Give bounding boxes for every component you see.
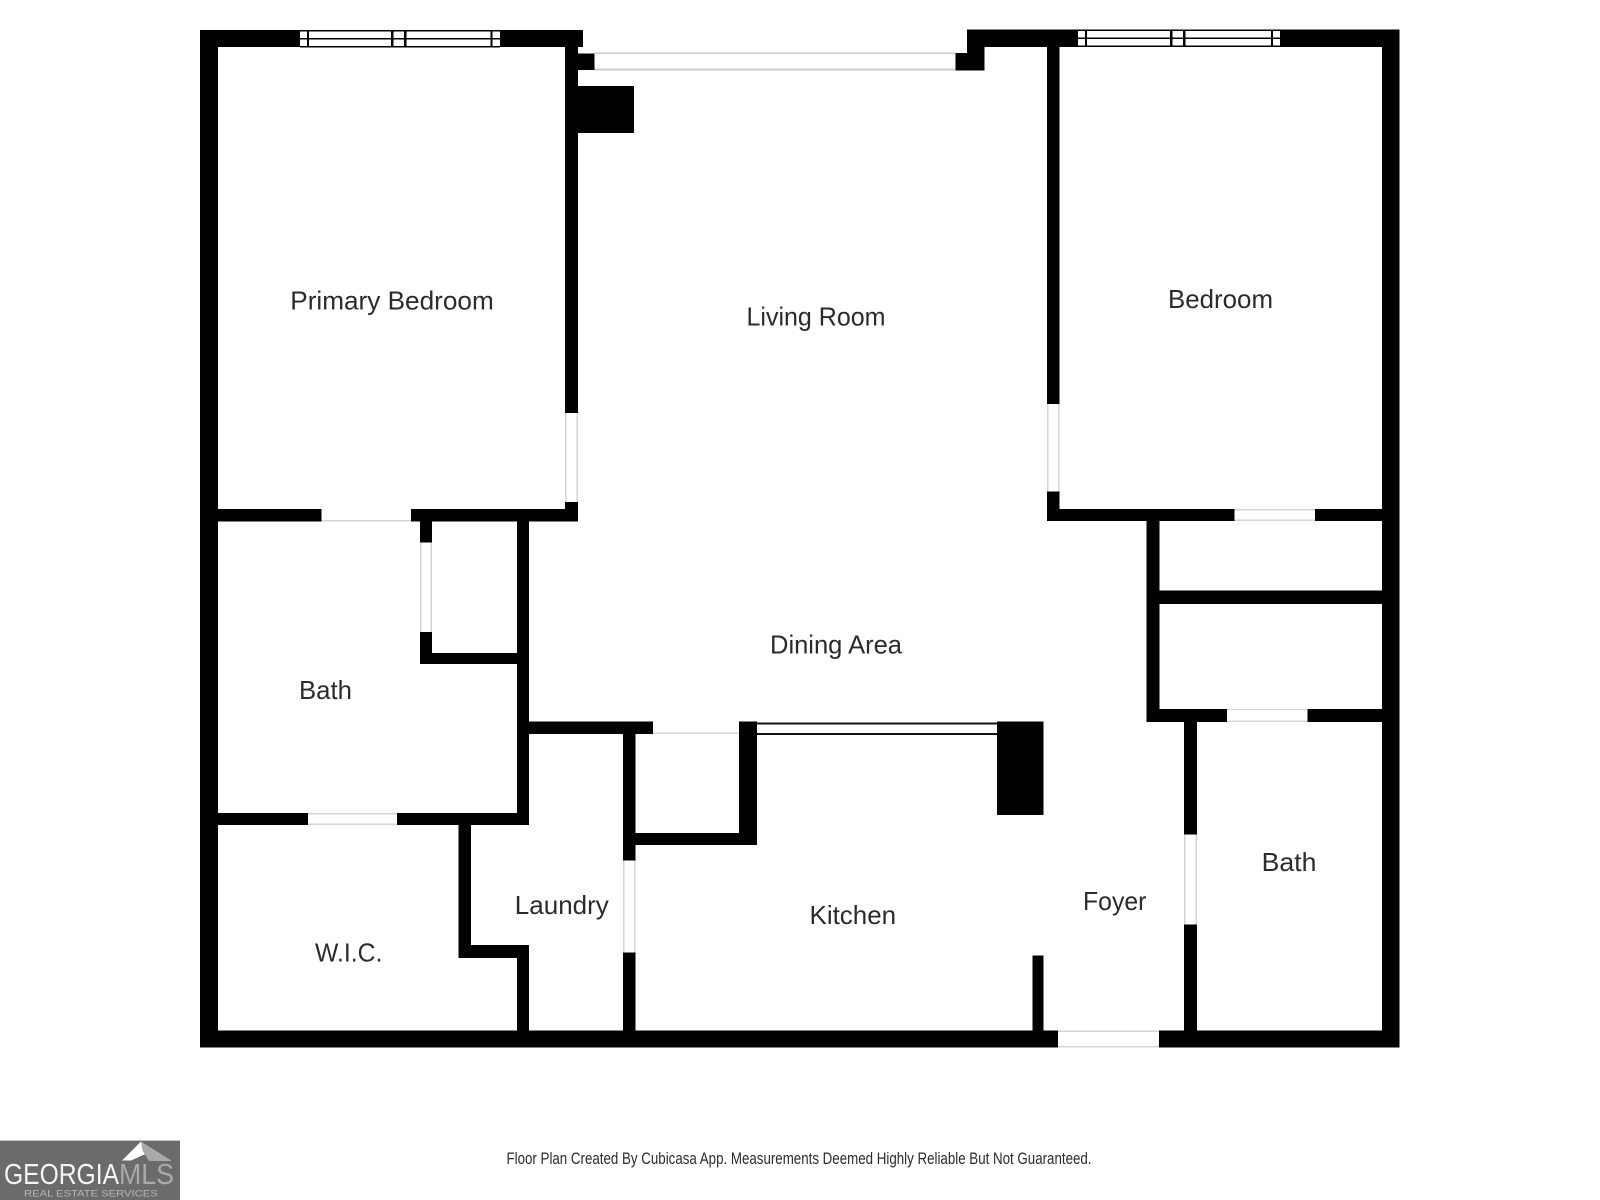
svg-text:Bath: Bath	[299, 675, 352, 705]
svg-text:Dining Area: Dining Area	[770, 629, 903, 659]
svg-text:W.I.C.: W.I.C.	[315, 937, 383, 967]
svg-text:Foyer: Foyer	[1083, 886, 1147, 916]
svg-text:Bath: Bath	[1262, 847, 1317, 877]
svg-text:GEORGIA: GEORGIA	[4, 1159, 120, 1191]
svg-text:MLS: MLS	[119, 1159, 174, 1191]
svg-text:Kitchen: Kitchen	[810, 900, 897, 930]
svg-text:REAL ESTATE SERVICES: REAL ESTATE SERVICES	[24, 1188, 158, 1199]
svg-text:Laundry: Laundry	[515, 890, 609, 920]
svg-text:Primary Bedroom: Primary Bedroom	[290, 286, 494, 316]
svg-text:Bedroom: Bedroom	[1168, 284, 1273, 314]
svg-text:Living Room: Living Room	[747, 302, 886, 332]
svg-text:Floor Plan Created By Cubicasa: Floor Plan Created By Cubicasa App. Meas…	[507, 1149, 1092, 1168]
